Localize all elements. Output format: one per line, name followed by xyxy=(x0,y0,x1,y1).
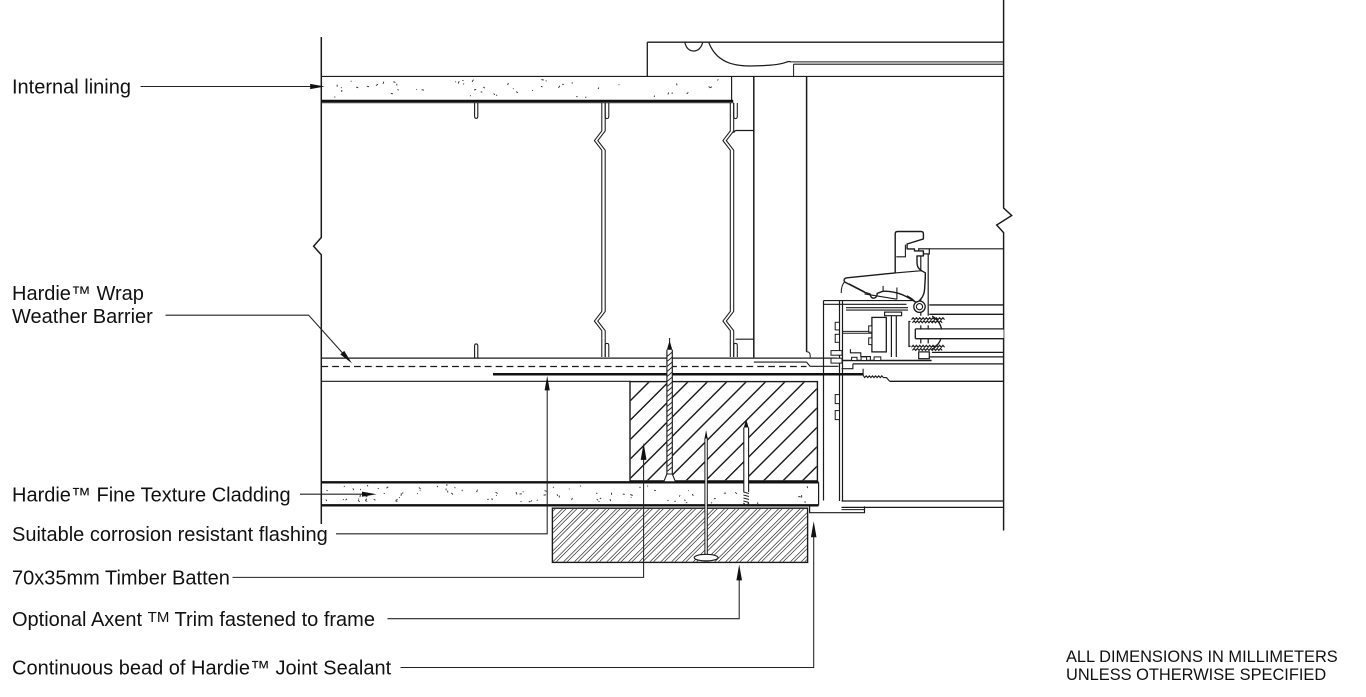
svg-text:UNLESS OTHERWISE SPECIFIED: UNLESS OTHERWISE SPECIFIED xyxy=(1066,666,1326,684)
svg-text:Suitable corrosion resistant f: Suitable corrosion resistant flashing xyxy=(12,524,328,546)
svg-text:70x35mm Timber Batten: 70x35mm Timber Batten xyxy=(12,568,230,590)
svg-text:Continuous bead of Hardie™ Joi: Continuous bead of Hardie™ Joint Sealant xyxy=(12,658,392,680)
svg-text:Optional Axent TM Trim fastene: Optional Axent TM Trim fastened to frame xyxy=(12,609,375,631)
svg-text:Internal lining: Internal lining xyxy=(12,77,131,99)
svg-text:Hardie™ Fine Texture Cladding: Hardie™ Fine Texture Cladding xyxy=(12,484,291,506)
svg-text:ALL DIMENSIONS IN MILLIMETERS: ALL DIMENSIONS IN MILLIMETERS xyxy=(1066,648,1338,666)
svg-text:Weather Barrier: Weather Barrier xyxy=(12,306,153,328)
svg-text:Hardie™ Wrap: Hardie™ Wrap xyxy=(12,283,144,305)
